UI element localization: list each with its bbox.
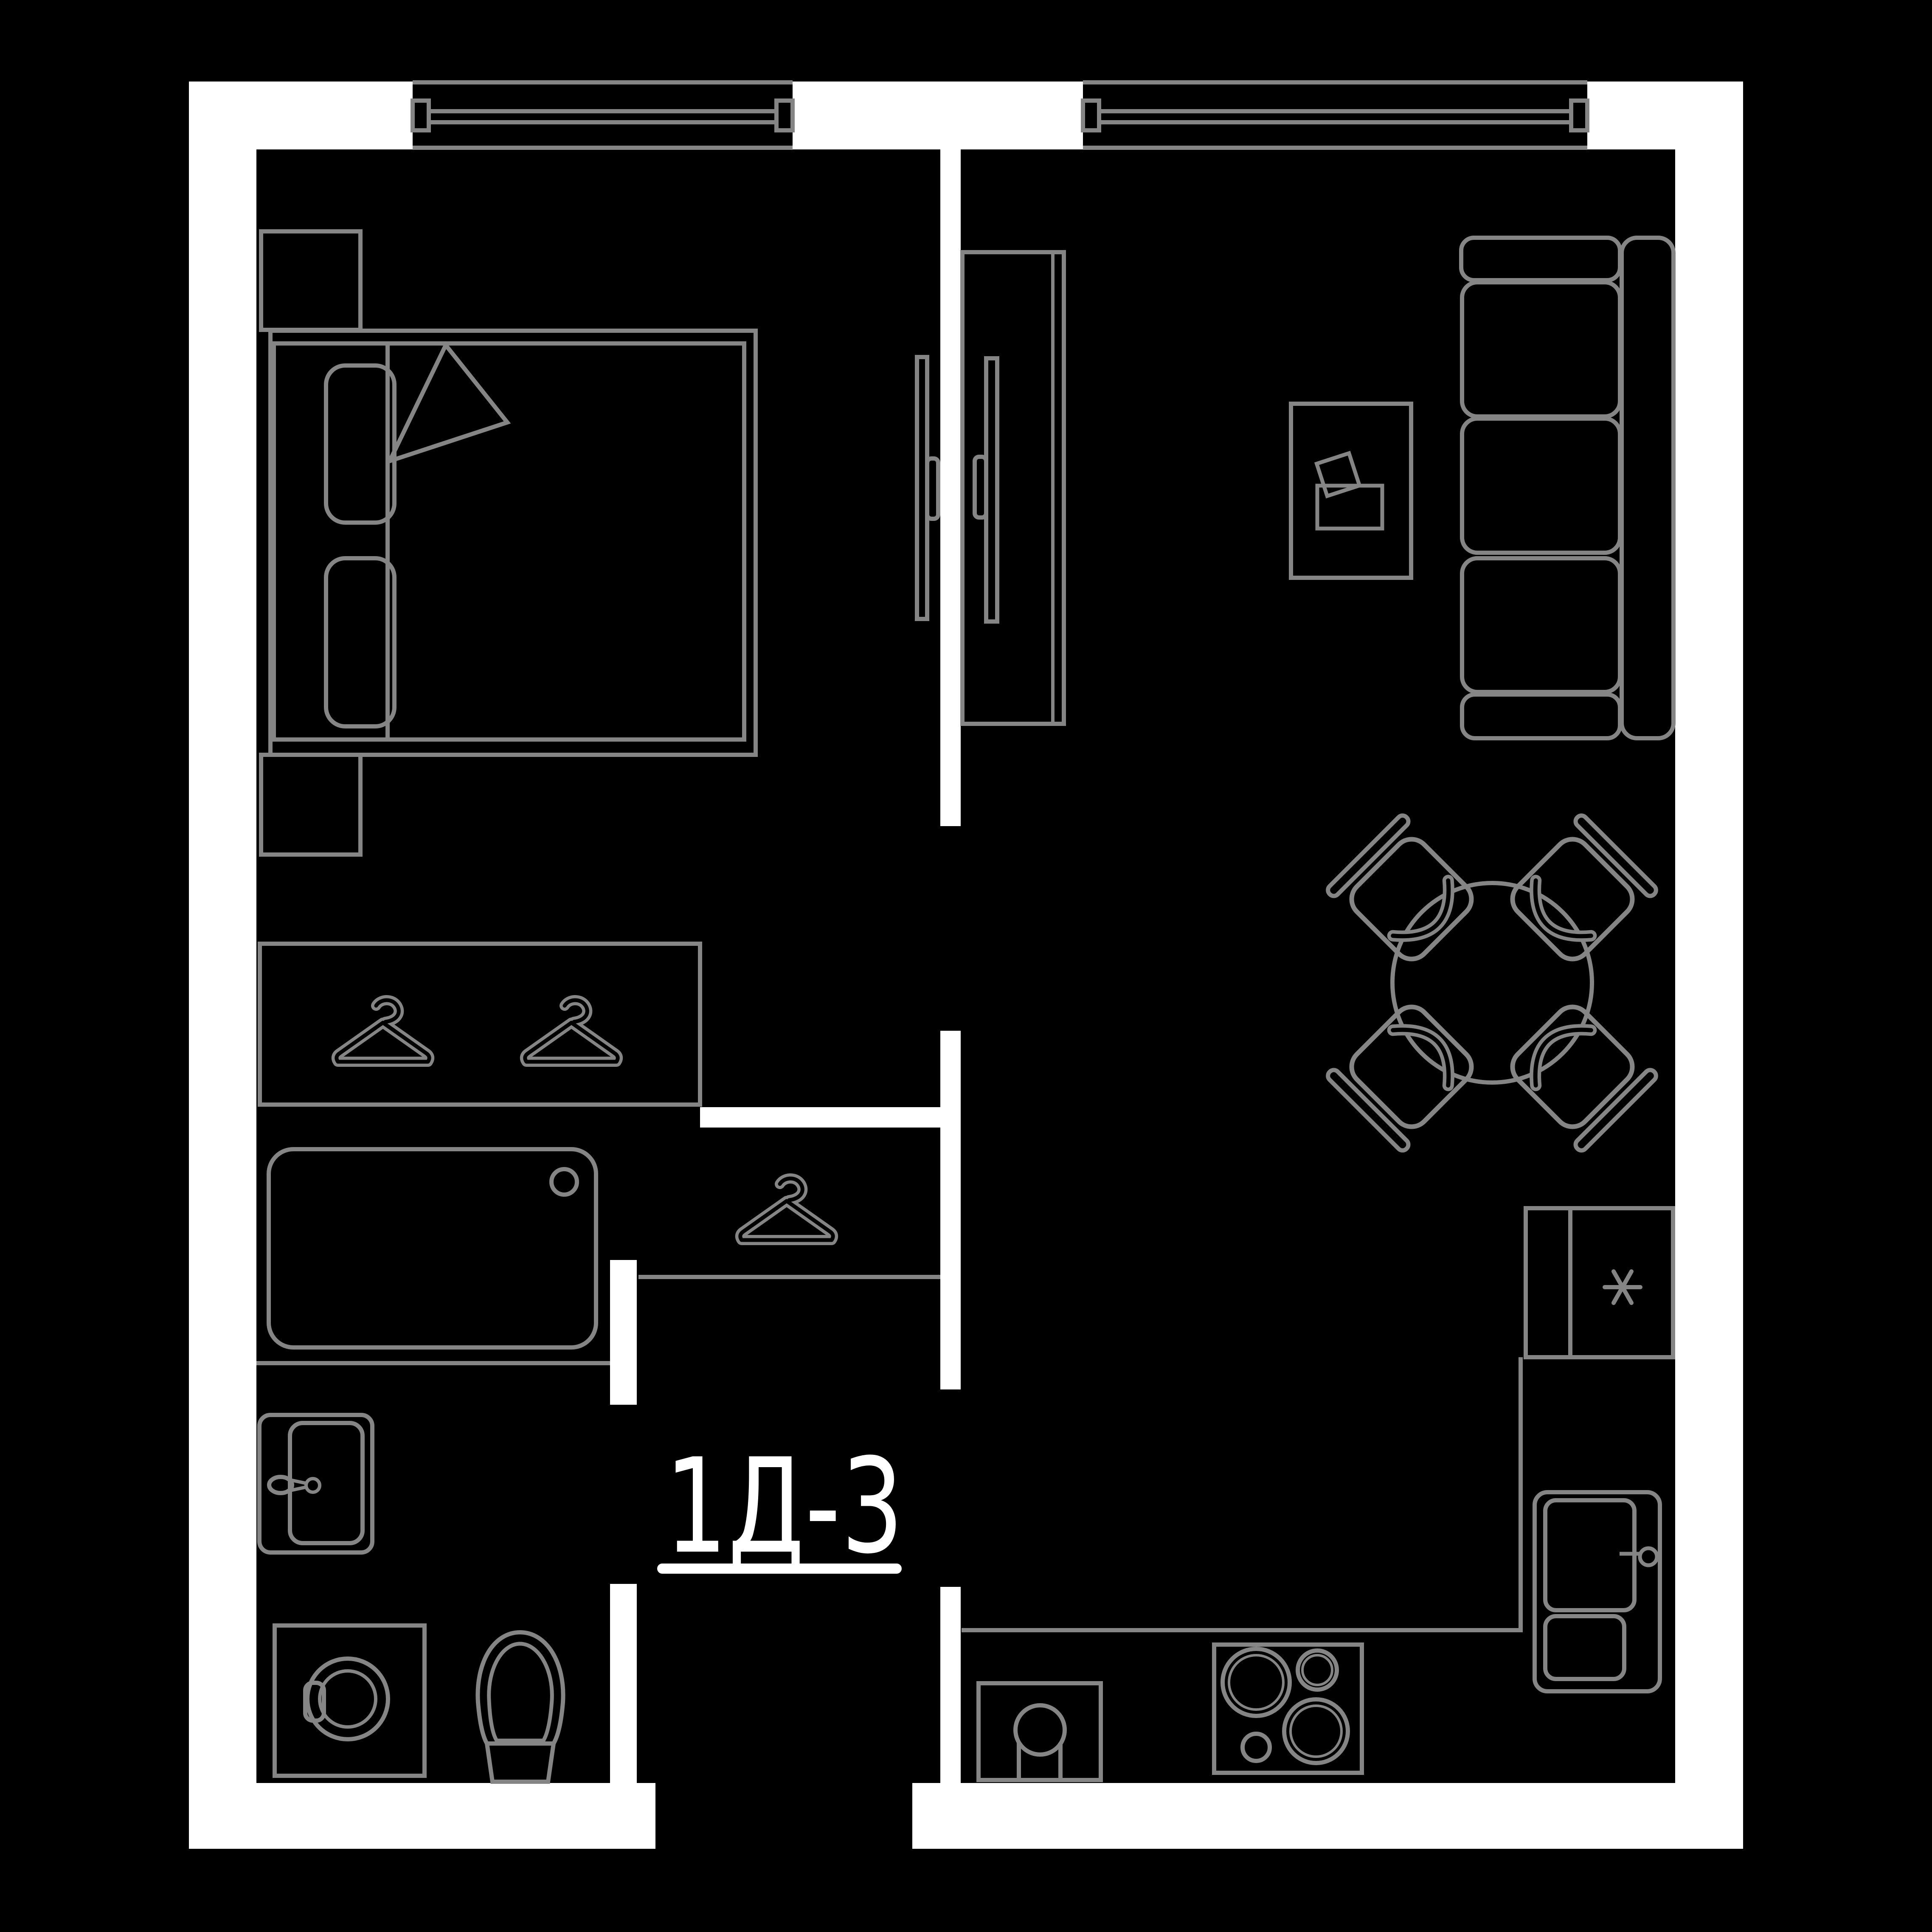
wall-bottom-right (912, 1783, 1743, 1849)
wall-right (1675, 82, 1743, 1849)
wall-separator-lower (940, 1587, 961, 1783)
apartment-label: 1Д-3 (657, 1431, 904, 1583)
wall-bath-upper (610, 1260, 637, 1405)
wall-separator-middle (940, 1031, 961, 1389)
wall-top-left (189, 82, 413, 149)
plan-background (0, 0, 1932, 1932)
wall-bedroom-bottom (700, 1107, 940, 1128)
wall-separator-upper (940, 149, 961, 826)
wall-bath-lower (610, 1584, 637, 1783)
apartment-type-label: 1Д-3 (665, 1431, 904, 1583)
wall-left (189, 82, 256, 1849)
wall-top-pier (793, 82, 1083, 149)
label-underline (657, 1564, 902, 1574)
wall-bottom-left (189, 1783, 655, 1849)
floor-plan: 1Д-3 (0, 0, 1932, 1932)
